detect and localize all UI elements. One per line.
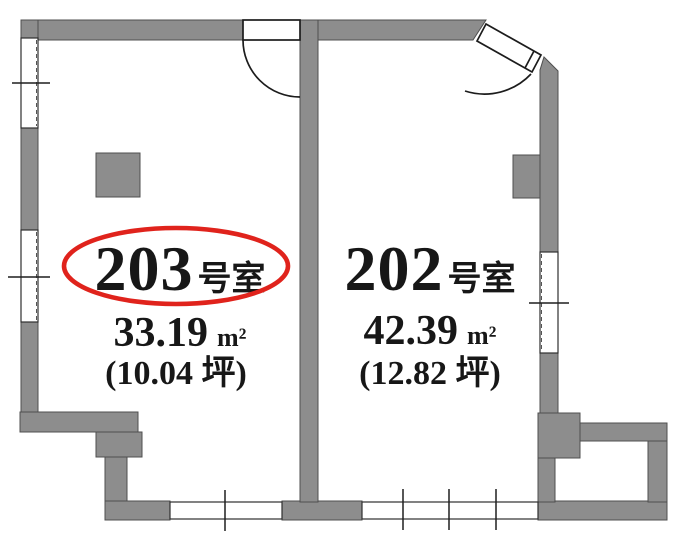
- dimension-ticks: [8, 83, 569, 531]
- room-203-area-value: 33.19: [114, 310, 209, 356]
- floorplan-page: 203号室 33.19m² (10.04 坪) 202号室 42.39m² (1…: [0, 0, 682, 542]
- room-203-labels: 203号室 33.19m² (10.04 坪): [95, 233, 266, 392]
- wall-step-horizontal: [20, 412, 138, 432]
- room-202-area-value: 42.39: [364, 308, 459, 354]
- room-203-number: 203: [95, 233, 194, 304]
- wall-step-vertical: [105, 457, 127, 502]
- wall-bottom-right: [538, 501, 667, 520]
- room-203-tsubo: (10.04 坪): [105, 354, 247, 392]
- window-bottom-203: [170, 502, 282, 519]
- wall-right-middle: [540, 353, 558, 413]
- column-room-203: [96, 153, 140, 197]
- wall-bottom-left: [105, 501, 170, 520]
- floorplan-drawing: 203号室 33.19m² (10.04 坪) 202号室 42.39m² (1…: [0, 0, 682, 542]
- room-203-title: 203号室: [95, 233, 266, 304]
- room-202-tsubo: (12.82 坪): [359, 354, 501, 392]
- room-202-suffix: 号室: [448, 259, 516, 298]
- room-202-labels: 202号室 42.39m² (12.82 坪): [345, 233, 516, 392]
- wall-right-upper: [540, 57, 558, 252]
- window-left-lower: [21, 230, 38, 322]
- wall-right-corner-block: [538, 413, 580, 458]
- room-202-area: 42.39m²: [364, 308, 497, 354]
- wall-right-lower-strip: [538, 458, 555, 502]
- wall-bottom-middle: [282, 501, 362, 520]
- room-203-area-unit: m²: [217, 323, 247, 352]
- room-202-number: 202: [345, 233, 444, 304]
- wall-divider: [300, 20, 318, 502]
- column-right-wall: [513, 155, 540, 198]
- room-202-title: 202号室: [345, 233, 516, 304]
- room-202-area-unit: m²: [467, 321, 497, 350]
- door-203-opening: [243, 20, 300, 40]
- window-bottom-202: [362, 502, 538, 519]
- room-203-area: 33.19m²: [114, 310, 247, 356]
- wall-extension-vertical: [648, 441, 667, 502]
- wall-extension-horizontal: [580, 423, 667, 441]
- wall-step-block: [96, 432, 142, 457]
- door-202-swing-arc: [465, 74, 531, 94]
- door-203-swing-arc: [243, 40, 300, 97]
- door-202-leaf: [477, 24, 541, 72]
